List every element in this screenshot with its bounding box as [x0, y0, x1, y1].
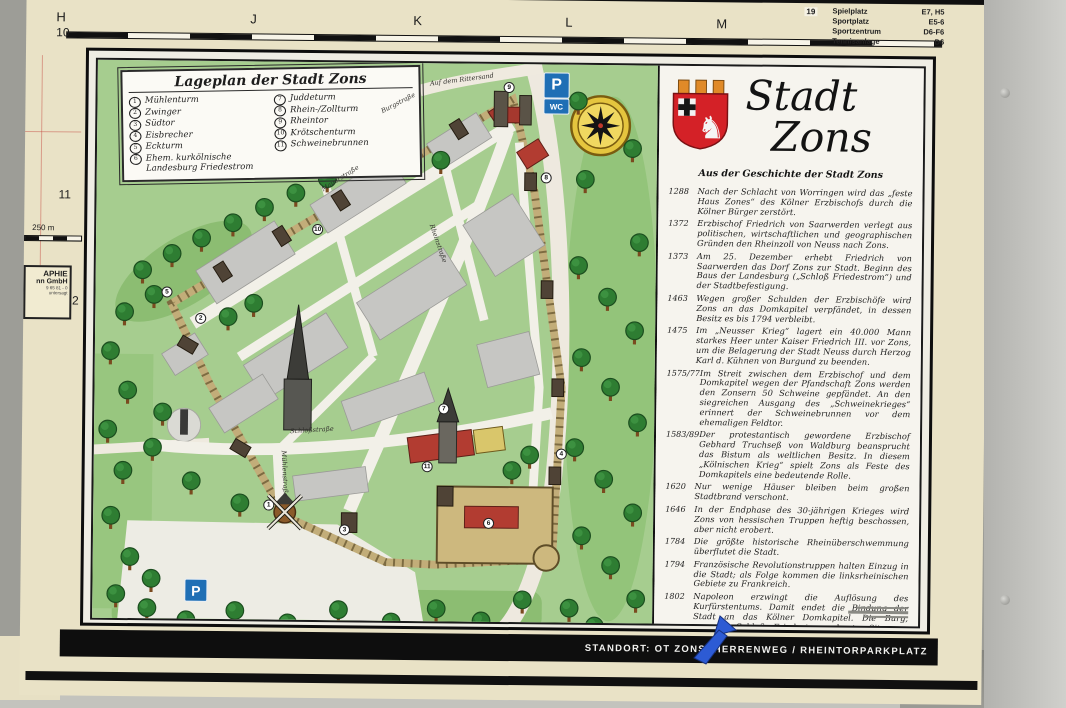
poi-index-list: SpielplatzE7, H5 SportplatzE5-6 Sportzen…: [832, 6, 944, 47]
grid-letter: K: [413, 13, 422, 28]
scale-bar: [24, 235, 82, 242]
grid-row-number: 11: [58, 187, 71, 201]
poi-label: Spielplatz: [832, 6, 867, 16]
legend-title: Lageplan der Stadt Zons: [128, 70, 412, 93]
wall-background: [984, 0, 1066, 708]
entry-year: 1646: [665, 505, 694, 535]
entry-text: In der Endphase des 30-jährigen Krieges …: [694, 505, 909, 537]
marker-zollturm: 8: [541, 172, 552, 183]
entry-year: 1372: [668, 219, 697, 249]
marker-juddeturm: 7: [438, 403, 449, 414]
entry-year: 1373: [668, 251, 697, 290]
history-entry: 1583/89Der protestantisch gewordene Erzb…: [666, 430, 910, 482]
grid-line: [39, 55, 43, 295]
marker-suedtor: 3: [339, 524, 350, 535]
history-entry: 1646In der Endphase des 30-jährigen Krie…: [665, 505, 909, 537]
publisher-box: APHIE nn GmbH 9 65 81 - 0 untersagt: [23, 265, 72, 319]
entry-year: 1463: [667, 294, 696, 324]
history-entry: 1575/77Im Streit zwischen dem Erzbischof…: [666, 368, 911, 429]
entry-year: 1620: [665, 482, 694, 502]
publisher-line: untersagt: [27, 290, 67, 295]
legend-label: Zwinger: [145, 107, 181, 118]
poi-ref: D6-F6: [923, 27, 944, 37]
marker-schweinebrunnen: 11: [422, 461, 433, 472]
entry-year: 1288: [668, 187, 697, 217]
entry-text: Die größte historische Rheinüberschwemmu…: [694, 537, 909, 559]
entry-text: Am 25. Dezember erhebt Friedrich von Saa…: [697, 252, 912, 293]
location-bar: STANDORT: OT ZONS, HERRENWEG / RHEINTORP…: [60, 629, 938, 665]
history-entry: 1784Die größte historische Rheinüberschw…: [665, 537, 909, 559]
grid-letter: L: [565, 15, 572, 30]
history-title: Stadt Zons: [745, 75, 914, 159]
marker-landesburg: 6: [483, 518, 494, 529]
history-entry: 1620Nur wenige Häuser bleiben beim große…: [665, 482, 909, 504]
grid-line: [25, 131, 81, 133]
map-legend: Lageplan der Stadt Zons 1Mühlenturm 2Zwi…: [120, 65, 422, 182]
entry-text: Im Streit zwischen dem Erzbischof und de…: [699, 369, 910, 430]
grid-letter: H: [56, 9, 66, 24]
map-board: H J K L M 10 11 12 250 m APHIE nn GmbH 9…: [19, 0, 988, 705]
grid-letter: J: [250, 11, 257, 26]
frame-bottom-edge: [25, 671, 977, 690]
history-entry: 1463Wegen großer Schulden der Erzbischöf…: [667, 294, 911, 326]
history-title-word: Stadt: [745, 75, 913, 119]
poi-label: Sportzentrum: [832, 26, 881, 37]
history-entry: 1288Nach der Schlacht von Worringen wird…: [668, 187, 912, 219]
entry-text: Nur wenige Häuser bleiben beim großen St…: [694, 482, 909, 504]
zons-coat-of-arms: ♞: [671, 78, 730, 151]
entry-text: Wegen großer Schulden der Erzbischöfe wi…: [696, 294, 911, 326]
monument-icon: [180, 409, 188, 435]
entry-text: Der protestantisch gewordene Erzbischof …: [699, 430, 910, 481]
photo-of-map-board: H J K L M 10 11 12 250 m APHIE nn GmbH 9…: [0, 0, 1066, 708]
history-panel: ♞ Stadt Zons Aus der Geschichte der Stad…: [654, 66, 924, 627]
entry-text: Im „Neusser Krieg“ lagert ein 40.000 Man…: [696, 326, 911, 367]
entry-text: Französische Revolutionstruppen halten E…: [693, 560, 908, 592]
scale-label: 250 m: [32, 223, 54, 232]
entry-year: 1794: [664, 560, 693, 590]
legend-num: 5: [130, 142, 142, 153]
legend-num: 1: [129, 96, 141, 107]
legend-num: 9: [274, 117, 286, 128]
location-text: STANDORT: OT ZONS, HERRENWEG / RHEINTORP…: [585, 643, 928, 658]
legend-label: Juddeturm: [290, 92, 336, 103]
grid-row-number: 10: [56, 25, 70, 39]
legend-num: 2: [129, 108, 141, 119]
legend-num: 3: [129, 119, 141, 130]
poi-label: Sportplatz: [832, 16, 869, 26]
legend-label: Eckturm: [146, 141, 183, 152]
history-entry: 1794Französische Revolutionstruppen halt…: [664, 560, 908, 592]
parking-sign-icon: P: [184, 579, 207, 602]
marker-rheintor: 9: [504, 82, 515, 93]
marker-eckturm: 5: [161, 286, 172, 297]
history-title-word: Zons: [771, 117, 913, 158]
history-entry: 1475Im „Neusser Krieg“ lagert ein 40.000…: [667, 326, 911, 368]
legend-num: 8: [274, 105, 286, 116]
history-entries: 1288Nach der Schlacht von Worringen wird…: [663, 187, 912, 627]
zons-inset-panel: Lageplan der Stadt Zons 1Mühlenturm 2Zwi…: [80, 48, 936, 635]
marker-muehlenturm: 1: [263, 499, 274, 510]
legend-num: 6: [130, 154, 142, 165]
legend-label: Schweinebrunnen: [291, 138, 369, 150]
entry-text: Nach der Schlacht von Worringen wird das…: [697, 187, 912, 219]
legend-label: Rheintor: [290, 116, 328, 127]
legend-label: Rhein-/Zollturm: [290, 104, 358, 116]
map-neatline: [66, 31, 942, 47]
poi-ref: E5-6: [928, 17, 944, 27]
legend-label: Krötschenturm: [290, 127, 355, 139]
illustrated-town-map: Lageplan der Stadt Zons 1Mühlenturm 2Zwi…: [92, 60, 658, 624]
grid-ref-fragment: 19: [804, 7, 817, 16]
entry-year: 1475: [667, 326, 696, 365]
history-entry: 1373Am 25. Dezember erhebt Friedrich von…: [668, 251, 912, 293]
legend-column-left: 1Mühlenturm 2Zwinger 3Südtor 4Eisbrecher…: [129, 94, 269, 175]
poi-ref: E7, H5: [921, 7, 944, 17]
parking-sign-icon: P: [544, 72, 570, 98]
legend-label: Eisbrecher: [145, 129, 192, 140]
legend-num: 4: [129, 131, 141, 142]
history-subtitle: Aus der Geschichte der Stadt Zons: [669, 168, 913, 182]
marker-kroetschenturm: 10: [312, 224, 323, 235]
legend-label: Mühlenturm: [145, 95, 199, 106]
poi-ref: D6: [934, 37, 944, 47]
entry-year: 1784: [665, 537, 694, 557]
entry-text: Erzbischof Friedrich von Saarwerden verl…: [697, 219, 912, 251]
entry-year: 1583/89: [666, 430, 700, 479]
location-arrow-icon: [686, 614, 750, 670]
marker-zwinger: 2: [195, 313, 206, 324]
screw-icon: [1000, 88, 1010, 98]
grid-letter: M: [716, 16, 727, 31]
legend-num: 7: [274, 94, 286, 105]
legend-label: Ehem. kurkölnische Landesburg Friedestro…: [146, 151, 269, 174]
small-print-credit: [848, 606, 908, 620]
poi-label: Tennisanlage: [832, 36, 879, 46]
legend-label: Südtor: [145, 118, 175, 129]
publisher-line: APHIE: [28, 269, 68, 278]
history-entry: 1372Erzbischof Friedrich von Saarwerden …: [668, 219, 912, 251]
screw-icon: [1000, 595, 1010, 605]
legend-num: 11: [275, 140, 287, 151]
svg-text:♞: ♞: [697, 110, 725, 146]
legend-num: 10: [274, 128, 286, 139]
entry-year: 1575/77: [666, 368, 700, 427]
wc-sign-icon: WC: [543, 98, 569, 114]
marker-eisbrecher: 4: [556, 449, 567, 460]
castle-friedestrom-icon: [437, 486, 560, 571]
